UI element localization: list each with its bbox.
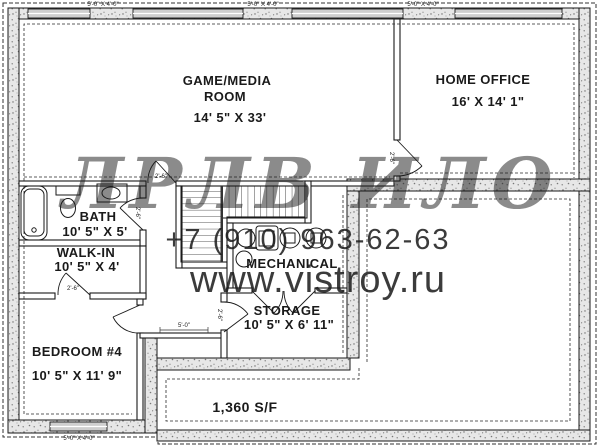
watermark-phone: +7 (910) 963-62-63 (165, 224, 450, 256)
walkin-dims: 10' 5" X 4' (54, 259, 119, 274)
bath-dims: 10' 5" X 5' (62, 224, 127, 239)
door-dim-label: 2'-6" (216, 309, 222, 321)
window-dim-label: 5'-0" X 4'-0" (63, 436, 94, 442)
floor-plan-svg: GAME/MEDIA ROOM 14' 5" X 33' HOME OFFICE… (0, 0, 600, 448)
home-office-dims: 16' X 14' 1" (452, 94, 525, 109)
bedroom-label: BEDROOM #4 (32, 344, 122, 359)
bedroom-door (113, 305, 140, 333)
bathtub (21, 186, 47, 240)
storage-label: STORAGE (254, 303, 321, 318)
watermark-logo: ЛРЛВ ИЛО (58, 142, 559, 225)
door-dim-label: 2'-6" (67, 286, 79, 292)
bedroom-dims: 10' 5" X 11' 9" (32, 368, 122, 383)
watermark-site: www.vistroy.ru (189, 259, 446, 301)
home-office-label: HOME OFFICE (436, 72, 531, 87)
area-label: 1,360 S/F (212, 399, 277, 415)
window-dim-label: 5'-0" X 4'-0" (247, 2, 278, 8)
floor-plan-image: GAME/MEDIA ROOM 14' 5" X 33' HOME OFFICE… (0, 0, 600, 448)
watermark: ЛРЛВ ИЛО +7 (910) 963-62-63 www.vistroy.… (58, 142, 559, 301)
game-room-dims: 14' 5" X 33' (194, 110, 267, 125)
walkin-label: WALK-IN (57, 245, 115, 260)
storage-dims: 10' 5" X 6' 11" (244, 317, 334, 332)
window-dim-label: 5'-0" X 4'-0" (407, 2, 438, 8)
game-room-label2: ROOM (204, 89, 246, 104)
window-dim-label: 5'-0" X 4'-0" (87, 2, 118, 8)
hall-dim-label: 5'-0" (178, 323, 190, 329)
game-room-label: GAME/MEDIA (183, 73, 272, 88)
